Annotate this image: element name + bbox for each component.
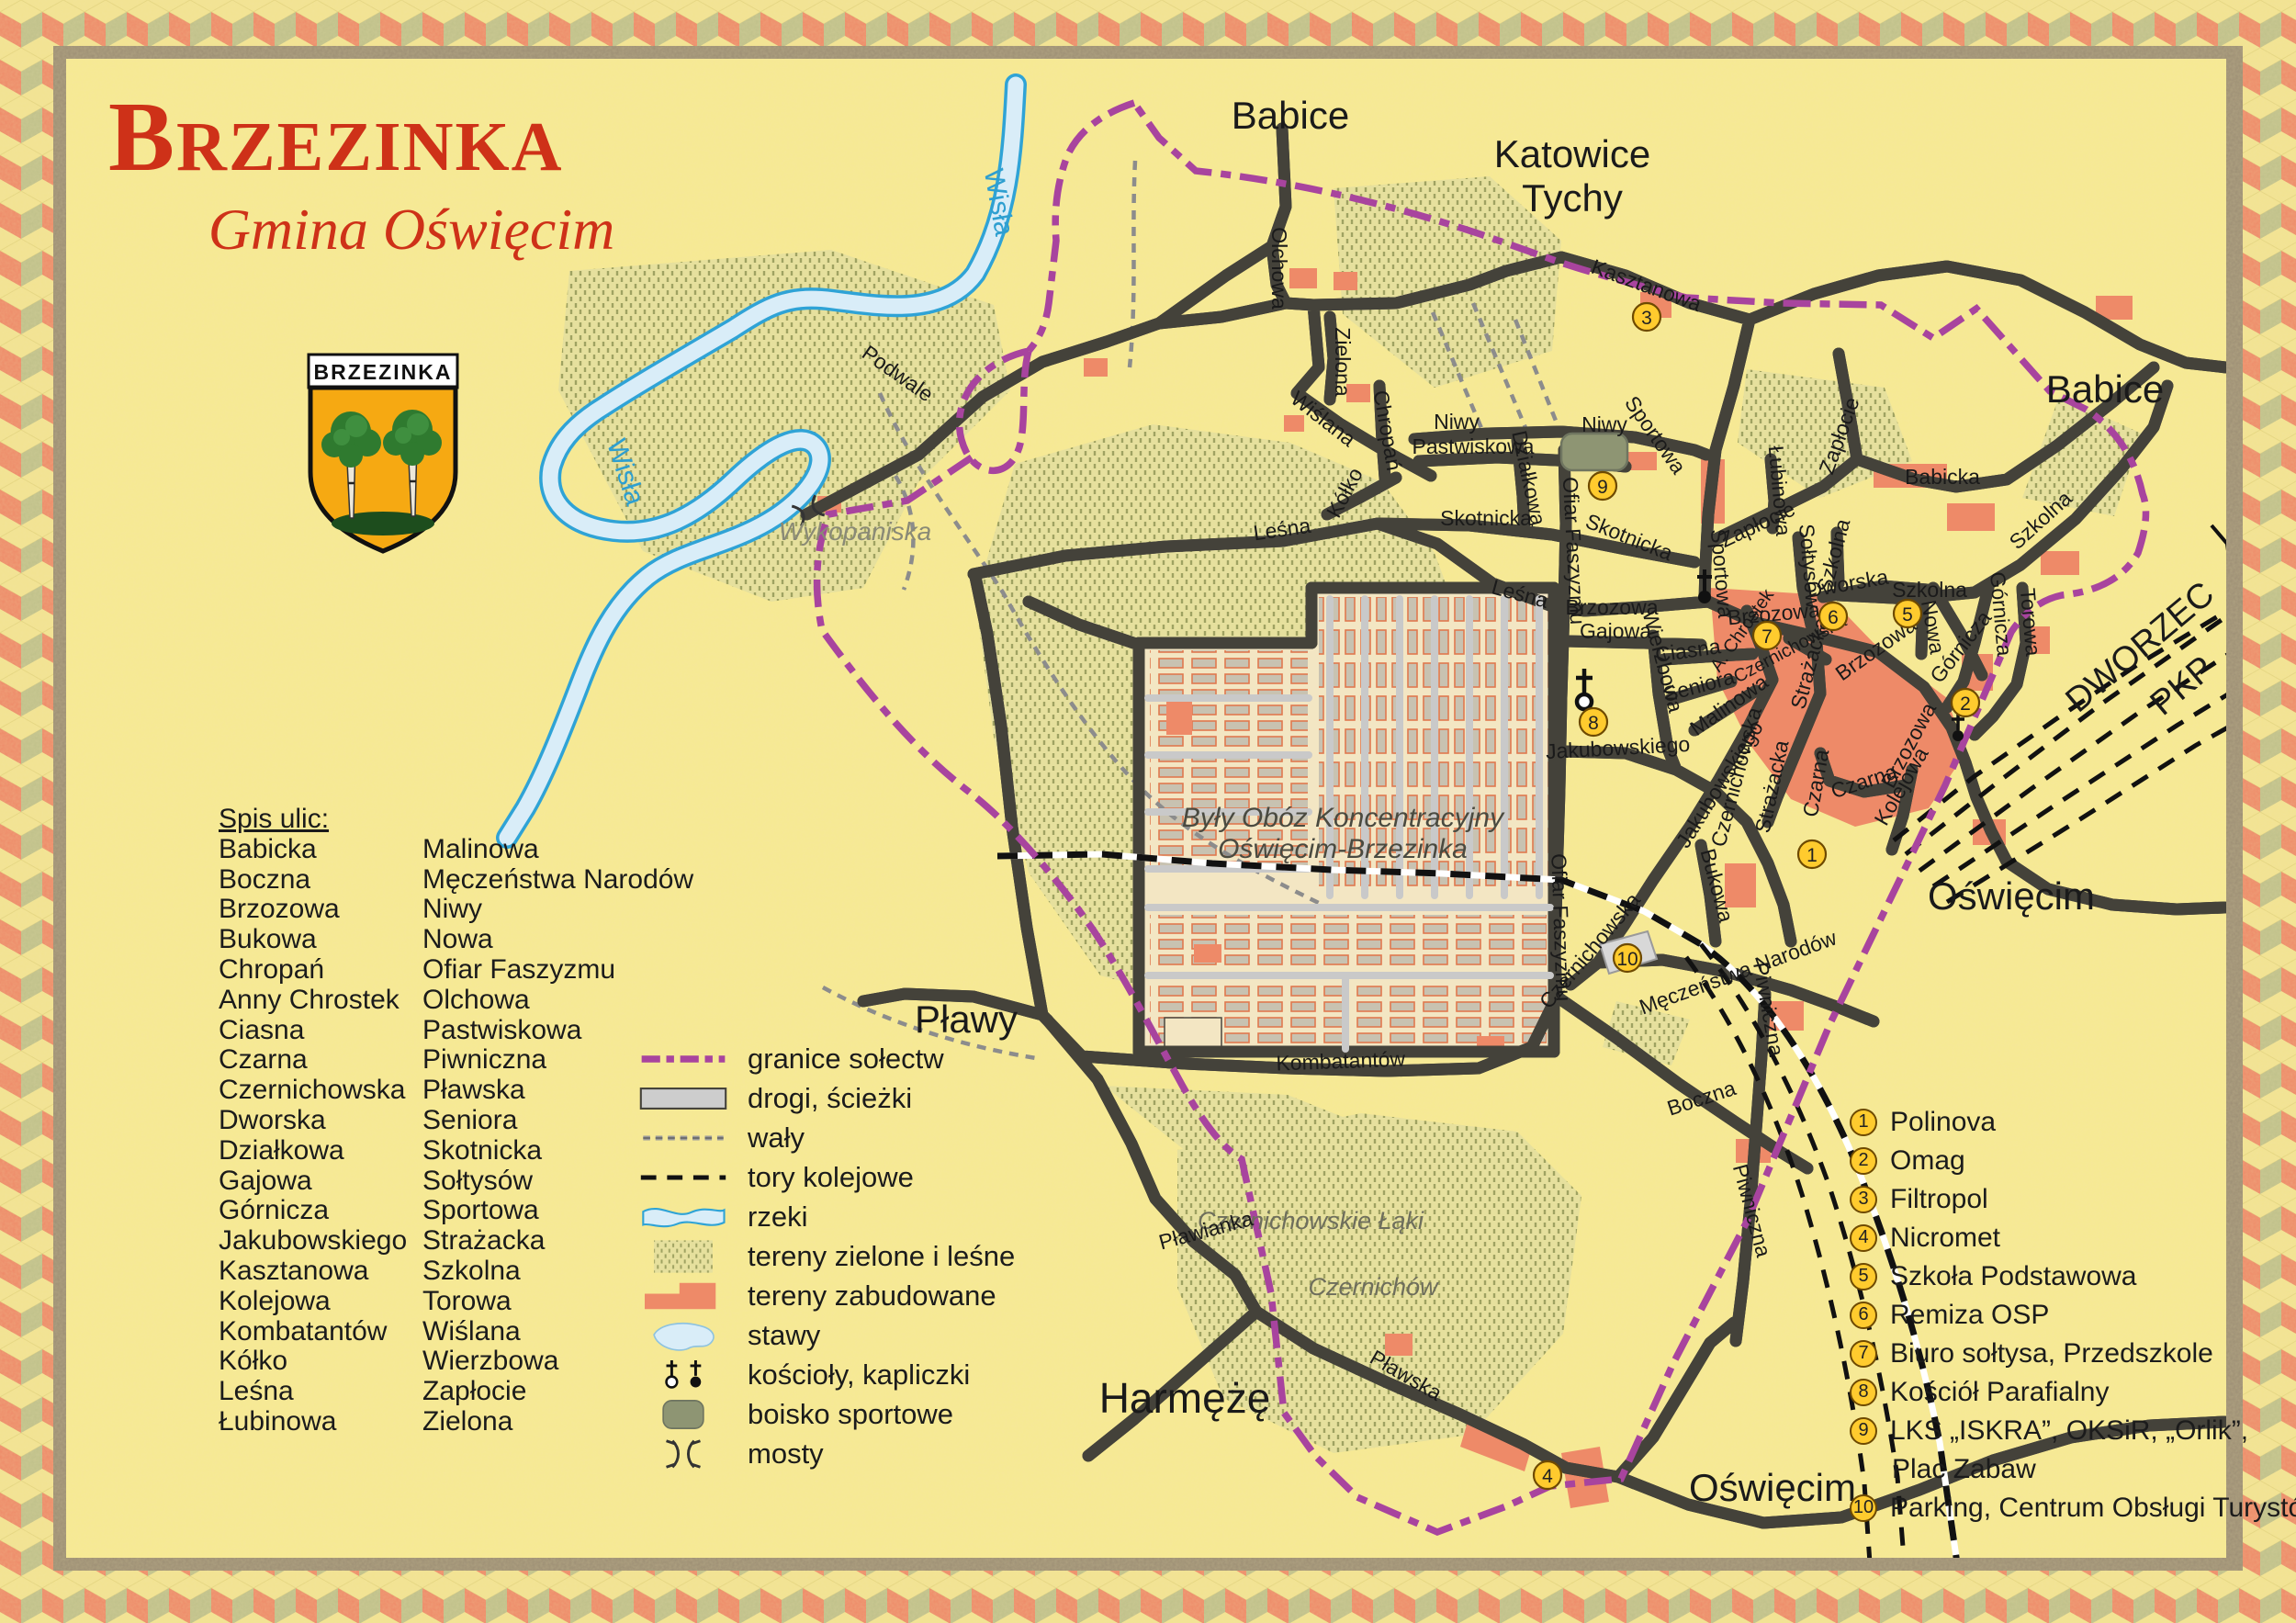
church-icon (628, 1356, 738, 1394)
rail-icon (628, 1158, 738, 1197)
place-label: Babice (1232, 94, 1349, 137)
map-page: WykopaniskaByły Obóz KoncentracyjnyOświę… (0, 0, 2296, 1623)
poi-marker-1: 1 (1798, 840, 1826, 868)
legend-item-church: kościoły, kapliczki (628, 1355, 1015, 1394)
street-index-item: Górnicza (219, 1196, 417, 1226)
poi-number-badge: 1 (1850, 1109, 1877, 1136)
legend-item-pond: stawy (628, 1315, 1015, 1355)
poi-number-badge: 9 (1850, 1417, 1877, 1445)
legend-label: kościoły, kapliczki (748, 1358, 970, 1392)
dike-icon (628, 1119, 738, 1157)
poi-number-badge: 5 (1850, 1263, 1877, 1291)
poi-marker-4: 4 (1534, 1461, 1561, 1489)
legend-label: granice sołectw (748, 1043, 944, 1076)
poi-number-badge: 3 (1850, 1186, 1877, 1213)
place-label: Oświęcim (1689, 1466, 1856, 1509)
place-label: Pławy (915, 997, 1018, 1041)
street-index-item: Gajowa (219, 1167, 417, 1197)
legend-label: tereny zabudowane (748, 1279, 996, 1313)
sports-pitch (1561, 434, 1627, 470)
street-index-item: Ofiar Faszyzmu (422, 955, 680, 986)
svg-text:2: 2 (1960, 693, 1971, 715)
street-index: Spis ulic: BabickaBocznaBrzozowaBukowaCh… (219, 805, 680, 1437)
green-icon (628, 1237, 738, 1276)
legend-label: rzeki (748, 1200, 807, 1234)
street-index-item: Nowa (422, 925, 680, 955)
crest-banner: BRZEZINKA (314, 360, 453, 384)
legend-item-road: drogi, ścieżki (628, 1078, 1015, 1118)
area-label: Wykopaniska (779, 517, 932, 546)
legend-item-rail: tory kolejowe (628, 1157, 1015, 1197)
street-index-item: Malinowa (422, 835, 680, 865)
svg-text:7: 7 (1761, 626, 1773, 648)
road-icon (628, 1079, 738, 1118)
street-index-col1: Spis ulic: BabickaBocznaBrzozowaBukowaCh… (219, 805, 417, 1437)
street-label: Olchowa (1267, 227, 1291, 310)
page-title: Brzezinka (108, 88, 715, 187)
place-label: Oświęcim (1928, 874, 2095, 918)
legend-label: tereny zielone i leśne (748, 1240, 1015, 1273)
street-index-item: Dworska (219, 1106, 417, 1136)
street-index-item: Działkowa (219, 1136, 417, 1167)
legend-item-bridge: mosty (628, 1434, 1015, 1473)
svg-text:4: 4 (1542, 1466, 1553, 1487)
street-index-item: Czernichowska (219, 1076, 417, 1106)
street-index-item: Kolejowa (219, 1287, 417, 1317)
svg-text:6: 6 (1828, 607, 1839, 628)
area-label: Czernichów (1308, 1273, 1439, 1301)
poi-marker-7: 7 (1753, 622, 1781, 649)
place-label: Harmężę (1099, 1374, 1271, 1422)
poi-number-badge: 7 (1850, 1340, 1877, 1368)
poi-label: Biuro sołtysa, Przedszkole (1890, 1338, 2213, 1369)
poi-legend-item: 4Nicromet (1850, 1223, 2296, 1252)
street-label: Skotnicka (1440, 506, 1532, 530)
street-label: Zielona (1331, 327, 1355, 397)
legend-label: mosty (748, 1437, 824, 1471)
poi-legend-item: 8Kościół Parafialny (1850, 1378, 2296, 1406)
legend-item-boundary: granice sołectw (628, 1039, 1015, 1078)
legend-label: boisko sportowe (748, 1398, 953, 1431)
place-label: Katowice (1494, 132, 1650, 175)
street-index-item: Babicka (219, 835, 417, 865)
legend-label: drogi, ścieżki (748, 1082, 912, 1115)
poi-number-badge: 2 (1850, 1147, 1877, 1175)
poi-label: Kościół Parafialny (1890, 1377, 2109, 1408)
poi-number-badge: 6 (1850, 1302, 1877, 1329)
area-label: Oświęcim-Brzezinka (1218, 834, 1468, 864)
builtup-icon (628, 1277, 738, 1315)
street-label: Szkolna (1892, 578, 1967, 602)
legend-item-dike: wały (628, 1118, 1015, 1157)
legend-label: wały (748, 1121, 805, 1155)
poi-legend-item: 9LKS „ISKRA”, OKSiR, „Orlik”, (1850, 1416, 2296, 1445)
street-index-item: Bukowa (219, 925, 417, 955)
street-label: Kombatantów (1276, 1047, 1406, 1076)
place-label: Tychy (1522, 176, 1623, 220)
poi-legend-item: 7Biuro sołtysa, Przedszkole (1850, 1339, 2296, 1368)
pond-icon (628, 1316, 738, 1355)
street-index-item: Łubinowa (219, 1407, 417, 1437)
street-index-item: Kasztanowa (219, 1257, 417, 1287)
legend-item-green: tereny zielone i leśne (628, 1236, 1015, 1276)
area-label: Były Obóz Koncentracyjny (1182, 803, 1505, 833)
svg-text:1: 1 (1806, 845, 1818, 866)
street-index-item: Boczna (219, 865, 417, 896)
street-index-item: Anny Chrostek (219, 986, 417, 1016)
legend-item-river: rzeki (628, 1197, 1015, 1236)
poi-legend-item-cont: Plac Zabaw (1850, 1455, 2296, 1483)
street-label: Niwy (1581, 412, 1627, 436)
legend-item-pitch: boisko sportowe (628, 1394, 1015, 1434)
street-index-heading: Spis ulic: (219, 805, 417, 835)
place-label: Babice (2046, 367, 2164, 411)
poi-label: Nicromet (1890, 1223, 2000, 1254)
poi-marker-9: 9 (1589, 472, 1616, 500)
poi-number-badge: 4 (1850, 1224, 1877, 1252)
poi-legend-item: 6Remiza OSP (1850, 1301, 2296, 1329)
poi-label: Remiza OSP (1890, 1300, 2049, 1331)
boundary-icon (628, 1040, 738, 1078)
poi-marker-3: 3 (1633, 303, 1660, 331)
poi-label: Plac Zabaw (1892, 1454, 2036, 1485)
street-index-item: Czarna (219, 1045, 417, 1076)
poi-label: LKS „ISKRA”, OKSiR, „Orlik”, (1890, 1415, 2248, 1447)
street-index-item: Leśna (219, 1377, 417, 1407)
poi-legend-item: 10Parking, Centrum Obsługi Turystów (1850, 1493, 2296, 1522)
poi-marker-2: 2 (1952, 689, 1979, 716)
poi-label: Szkoła Podstawowa (1890, 1261, 2136, 1292)
street-label: Babicka (1905, 465, 1980, 489)
svg-text:3: 3 (1641, 308, 1652, 329)
poi-number-badge: 8 (1850, 1379, 1877, 1406)
bridge-icon (628, 1435, 738, 1473)
poi-label: Omag (1890, 1145, 1965, 1177)
poi-legend: 1Polinova2Omag3Filtropol4Nicromet5Szkoła… (1850, 1108, 2296, 1532)
poi-label: Parking, Centrum Obsługi Turystów (1890, 1493, 2296, 1524)
pitch-icon (628, 1395, 738, 1434)
svg-text:9: 9 (1597, 477, 1608, 498)
river-icon (628, 1198, 738, 1236)
street-index-item: Brzozowa (219, 895, 417, 925)
poi-legend-item: 3Filtropol (1850, 1185, 2296, 1213)
poi-label: Polinova (1890, 1107, 1996, 1138)
map-legend: granice sołectwdrogi, ścieżkiwałytory ko… (628, 1039, 1015, 1473)
poi-marker-5: 5 (1894, 600, 1921, 627)
street-index-item: Olchowa (422, 986, 680, 1016)
svg-text:10: 10 (1616, 949, 1638, 970)
street-label: Niwy (1434, 410, 1480, 434)
poi-marker-10: 10 (1614, 944, 1641, 972)
legend-label: stawy (748, 1319, 820, 1352)
poi-legend-item: 1Polinova (1850, 1108, 2296, 1136)
street-index-item: Chropań (219, 955, 417, 986)
street-index-item: Kombatantów (219, 1317, 417, 1347)
svg-text:8: 8 (1588, 713, 1599, 734)
poi-marker-8: 8 (1580, 708, 1607, 736)
svg-text:5: 5 (1902, 604, 1913, 626)
title-block: Brzezinka Gmina Oświęcim (108, 88, 715, 259)
legend-label: tory kolejowe (748, 1161, 914, 1194)
street-index-item: Męczeństwa Narodów (422, 865, 680, 896)
street-index-item: Kółko (219, 1347, 417, 1377)
poi-marker-6: 6 (1819, 603, 1847, 630)
street-index-item: Niwy (422, 895, 680, 925)
legend-item-builtup: tereny zabudowane (628, 1276, 1015, 1315)
page-subtitle: Gmina Oświęcim (108, 200, 715, 259)
poi-legend-item: 2Omag (1850, 1146, 2296, 1175)
poi-legend-item: 5Szkoła Podstawowa (1850, 1262, 2296, 1291)
poi-label: Filtropol (1890, 1184, 1988, 1215)
street-index-item: Ciasna (219, 1016, 417, 1046)
poi-number-badge: 10 (1850, 1494, 1877, 1522)
coat-of-arms: BRZEZINKA (309, 355, 457, 551)
street-index-item: Jakubowskiego (219, 1226, 417, 1257)
